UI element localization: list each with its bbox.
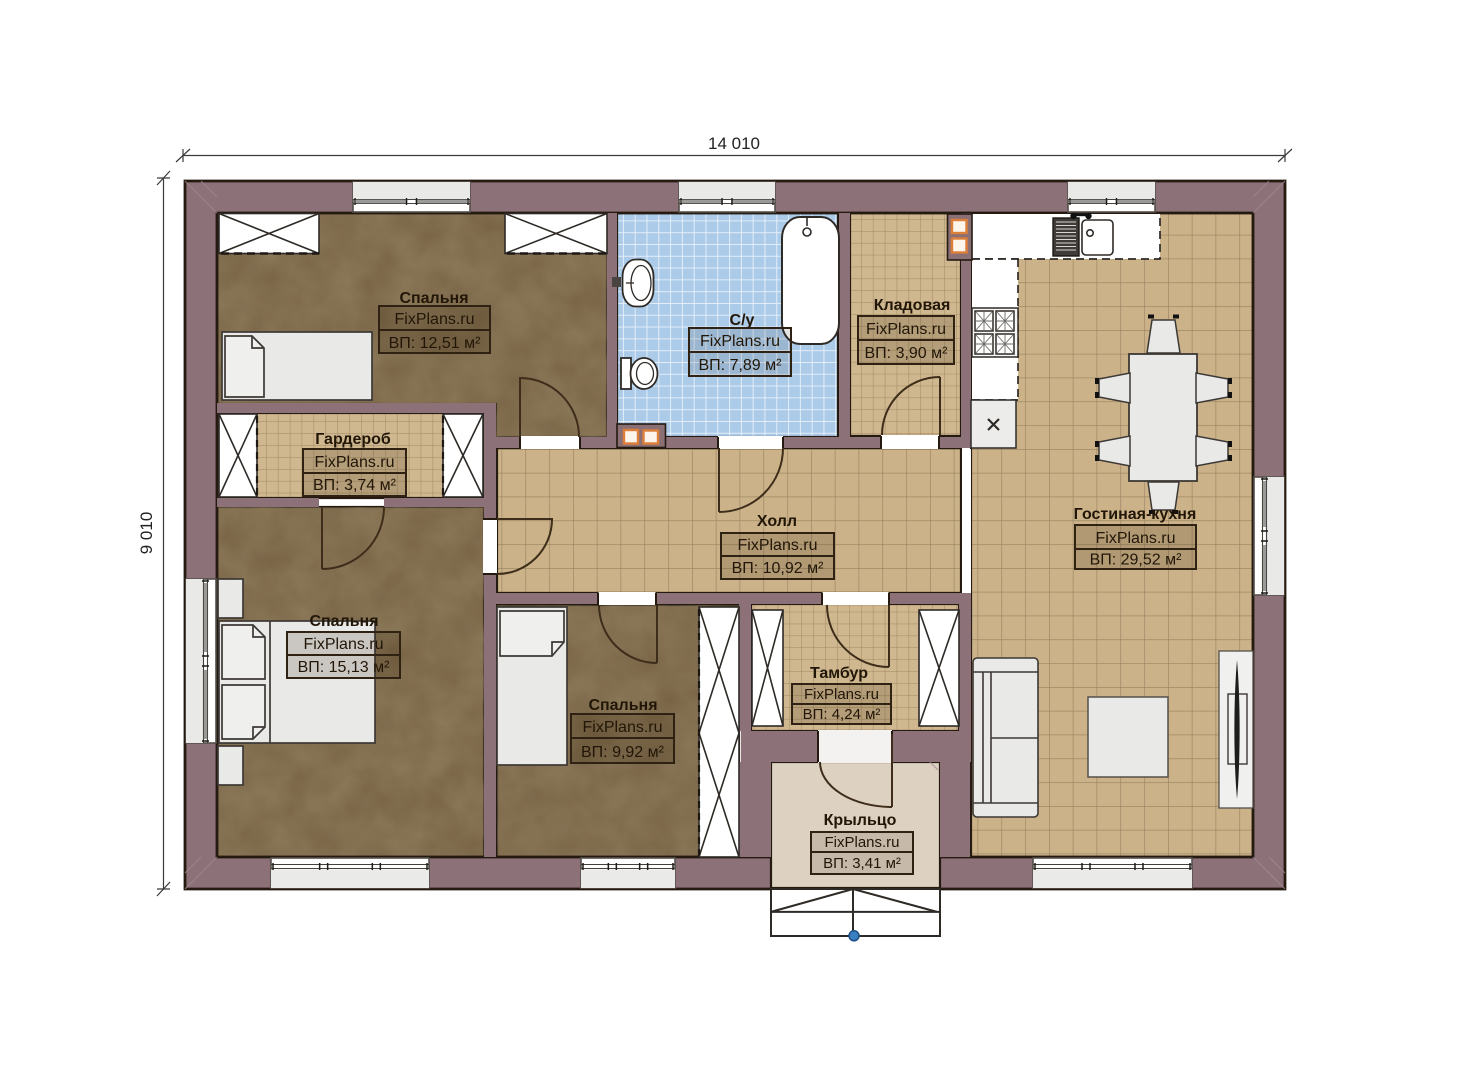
svg-text:FixPlans.ru: FixPlans.ru bbox=[804, 686, 879, 703]
svg-text:Холл: Холл bbox=[757, 513, 797, 530]
svg-text:FixPlans.ru: FixPlans.ru bbox=[737, 537, 817, 554]
svg-text:ВП: 4,24 м²: ВП: 4,24 м² bbox=[803, 706, 881, 723]
svg-text:ВП: 29,52 м²: ВП: 29,52 м² bbox=[1090, 552, 1183, 569]
svg-text:Гардероб: Гардероб bbox=[315, 431, 391, 448]
svg-text:FixPlans.ru: FixPlans.ru bbox=[582, 719, 662, 736]
svg-text:Тамбур: Тамбур bbox=[810, 665, 868, 682]
svg-text:С/у: С/у bbox=[730, 312, 755, 329]
svg-text:ВП: 3,41 м²: ВП: 3,41 м² bbox=[823, 855, 901, 872]
svg-text:Спальня: Спальня bbox=[588, 697, 657, 714]
svg-text:ВП: 9,92 м²: ВП: 9,92 м² bbox=[581, 744, 665, 761]
svg-text:FixPlans.ru: FixPlans.ru bbox=[824, 834, 899, 851]
svg-text:ВП: 3,74 м²: ВП: 3,74 м² bbox=[313, 477, 397, 494]
svg-text:FixPlans.ru: FixPlans.ru bbox=[866, 321, 946, 338]
svg-text:ВП: 12,51 м²: ВП: 12,51 м² bbox=[389, 335, 482, 352]
svg-text:FixPlans.ru: FixPlans.ru bbox=[314, 454, 394, 471]
svg-text:ВП: 7,89 м²: ВП: 7,89 м² bbox=[699, 357, 783, 374]
svg-text:Спальня: Спальня bbox=[399, 290, 468, 307]
svg-text:FixPlans.ru: FixPlans.ru bbox=[394, 311, 474, 328]
svg-text:FixPlans.ru: FixPlans.ru bbox=[303, 636, 383, 653]
svg-text:9 010: 9 010 bbox=[137, 512, 156, 555]
svg-text:ВП: 15,13 м²: ВП: 15,13 м² bbox=[298, 659, 391, 676]
svg-text:Крыльцо: Крыльцо bbox=[824, 812, 897, 829]
svg-text:14 010: 14 010 bbox=[708, 134, 760, 153]
svg-text:ВП: 3,90 м²: ВП: 3,90 м² bbox=[865, 345, 949, 362]
svg-text:Гостиная-кухня: Гостиная-кухня bbox=[1074, 506, 1197, 523]
svg-text:FixPlans.ru: FixPlans.ru bbox=[1095, 530, 1175, 547]
svg-text:Кладовая: Кладовая bbox=[874, 297, 951, 314]
svg-text:Спальня: Спальня bbox=[309, 613, 378, 630]
svg-text:ВП: 10,92 м²: ВП: 10,92 м² bbox=[732, 560, 825, 577]
svg-text:FixPlans.ru: FixPlans.ru bbox=[700, 333, 780, 350]
